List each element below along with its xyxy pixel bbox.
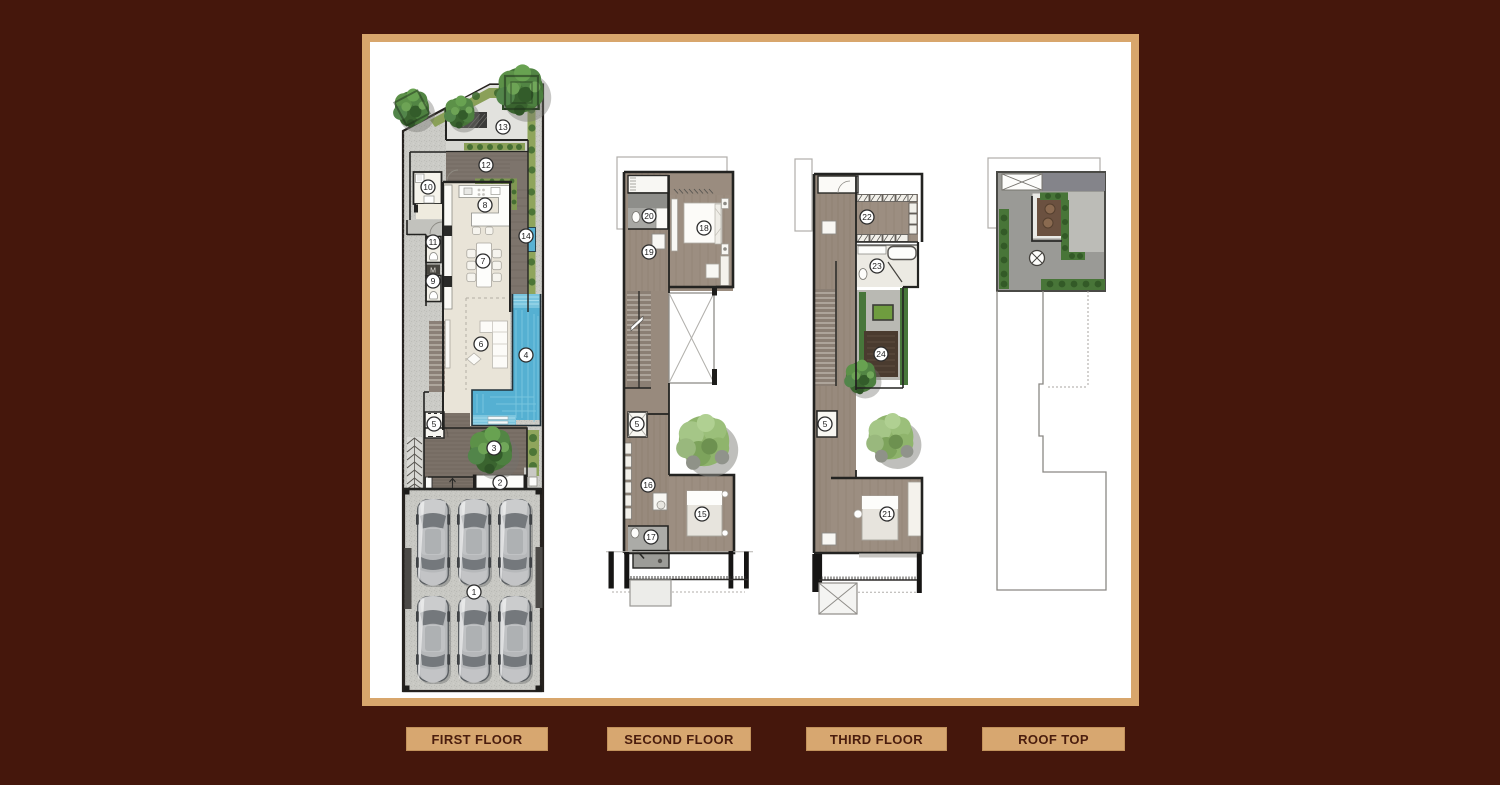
svg-text:15: 15 (697, 509, 707, 519)
svg-text:19: 19 (644, 247, 654, 257)
svg-text:4: 4 (524, 350, 529, 360)
svg-text:5: 5 (635, 419, 640, 429)
svg-text:20: 20 (644, 211, 654, 221)
svg-text:2: 2 (498, 478, 503, 488)
svg-text:24: 24 (876, 349, 886, 359)
svg-text:13: 13 (498, 122, 508, 132)
svg-text:22: 22 (862, 212, 872, 222)
svg-text:16: 16 (643, 480, 653, 490)
svg-text:3: 3 (492, 443, 497, 453)
svg-text:1: 1 (472, 587, 477, 597)
svg-text:6: 6 (479, 339, 484, 349)
svg-text:5: 5 (432, 419, 437, 429)
svg-text:5: 5 (823, 419, 828, 429)
svg-text:9: 9 (431, 276, 436, 286)
svg-text:14: 14 (521, 231, 531, 241)
svg-text:8: 8 (483, 200, 488, 210)
svg-text:12: 12 (481, 160, 491, 170)
svg-text:7: 7 (481, 256, 486, 266)
svg-text:17: 17 (646, 532, 656, 542)
svg-text:18: 18 (699, 223, 709, 233)
svg-text:21: 21 (882, 509, 892, 519)
svg-text:23: 23 (872, 261, 882, 271)
svg-text:10: 10 (423, 182, 433, 192)
svg-text:11: 11 (429, 237, 438, 247)
